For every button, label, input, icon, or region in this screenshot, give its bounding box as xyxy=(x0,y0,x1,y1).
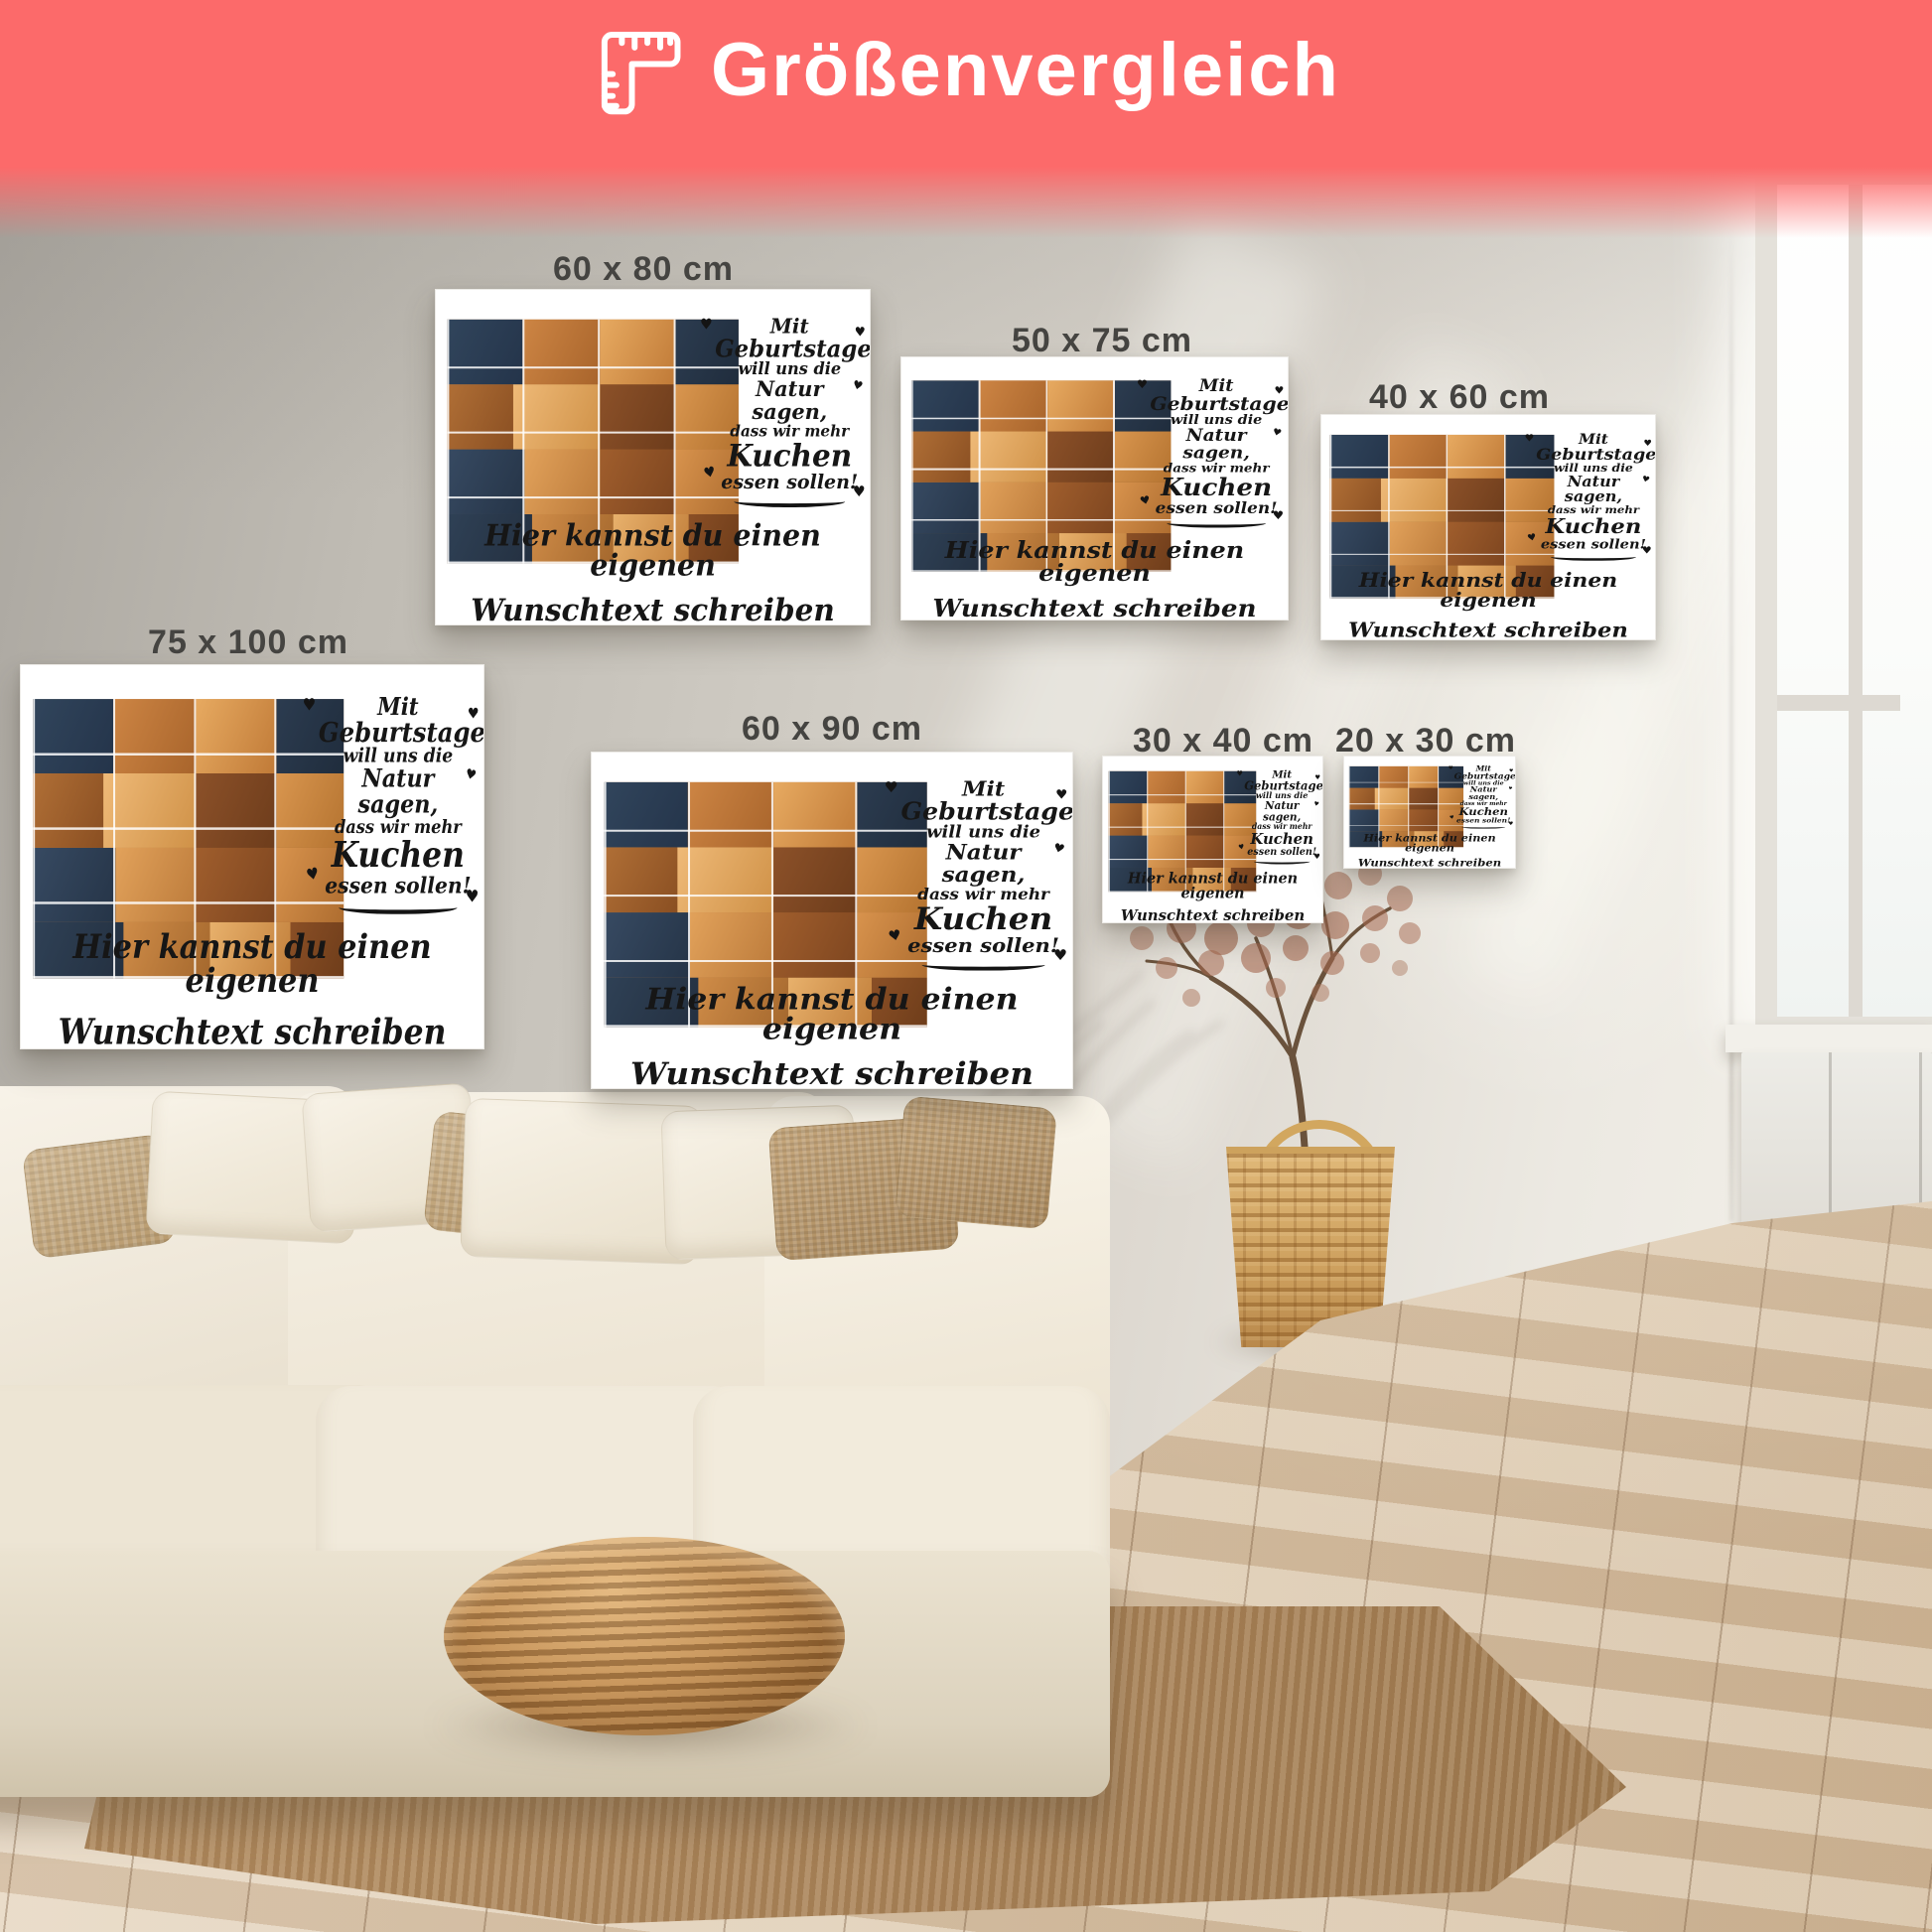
phrase-line: Natur sagen, xyxy=(1150,427,1283,463)
heart-icon: ♥ xyxy=(1314,774,1320,781)
canvas-print: 90 Mit Geburtstagen will uns die Natur s… xyxy=(20,664,484,1049)
throw-pillow xyxy=(895,1096,1057,1230)
page-title: Größenvergleich xyxy=(711,27,1340,113)
window-mullion xyxy=(1777,695,1900,711)
custom-text-line: Wunschtext schreiben xyxy=(1103,908,1322,923)
phrase-line: Geburtstagen xyxy=(900,800,1065,825)
phrase-line: essen sollen! xyxy=(900,935,1065,956)
phrase-line: essen sollen! xyxy=(1454,817,1513,824)
phrase-line: Kuchen xyxy=(715,440,864,472)
heart-icon: ♥ xyxy=(1449,765,1453,771)
heart-icon: ♥ xyxy=(1055,788,1067,803)
canvas-design: 90 Mit Geburtstagen will uns die Natur s… xyxy=(436,290,870,624)
phrase-line: essen sollen! xyxy=(1536,537,1650,551)
phrase-line: Geburtstagen xyxy=(715,337,864,361)
heart-icon: ♥ xyxy=(468,706,480,723)
custom-text-line: Hier kannst du einen eigenen xyxy=(1103,872,1322,900)
phrase-line: Geburtstagen xyxy=(1536,447,1650,464)
phrase-line: Natur sagen, xyxy=(900,842,1065,887)
heart-icon: ♥ xyxy=(853,483,866,500)
heart-icon: ♥ xyxy=(1508,821,1513,827)
phrase-line: essen sollen! xyxy=(319,874,478,897)
heart-icon: ♥ xyxy=(1525,432,1535,444)
heart-icon: ♥ xyxy=(700,316,713,334)
custom-text-line: Wunschtext schreiben xyxy=(1321,621,1655,640)
heart-icon: ♥ xyxy=(1643,439,1652,449)
window-sill xyxy=(1725,1025,1932,1052)
heart-icon: ♥ xyxy=(1642,544,1652,556)
header-banner: Größenvergleich xyxy=(0,0,1932,238)
phrase-line: Kuchen xyxy=(900,903,1065,935)
phrase-block: Mit Geburtstagen will uns die Natur sage… xyxy=(715,316,864,507)
custom-text-block: Hier kannst du einen eigenen Wunschtext … xyxy=(1344,834,1515,869)
swash-underline xyxy=(1461,825,1505,829)
phrase-line: Kuchen xyxy=(319,838,478,875)
size-label: 60 x 80 cm xyxy=(553,250,734,289)
heart-icon: ♥ xyxy=(1137,377,1148,391)
phrase-line: Kuchen xyxy=(1150,476,1283,500)
canvas-print: 90 Mit Geburtstagen will uns die Natur s… xyxy=(1343,756,1516,869)
wall-corner xyxy=(1729,228,1733,1221)
heart-icon: ♥ xyxy=(1238,843,1246,852)
swash-underline xyxy=(734,495,845,507)
heart-icon: ♥ xyxy=(1273,508,1284,522)
phrase-line: Natur sagen, xyxy=(1454,786,1513,801)
ruler-icon xyxy=(592,24,683,115)
phrase-block: Mit Geburtstagen will uns die Natur sage… xyxy=(1536,432,1650,561)
heart-icon: ♥ xyxy=(1237,769,1243,778)
size-label: 75 x 100 cm xyxy=(148,623,348,662)
swash-underline xyxy=(1551,553,1636,561)
swash-underline xyxy=(1167,518,1266,527)
heart-icon: ♥ xyxy=(1053,946,1067,964)
canvas-design: 90 Mit Geburtstagen will uns die Natur s… xyxy=(592,753,1072,1088)
custom-text-line: Wunschtext schreiben xyxy=(21,1016,483,1049)
canvas-print: 90 Mit Geburtstagen will uns die Natur s… xyxy=(435,289,871,625)
phrase-block: Mit Geburtstagen will uns die Natur sage… xyxy=(1150,377,1283,527)
window-mullion xyxy=(1849,185,1863,1017)
custom-text-block: Hier kannst du einen eigenen Wunschtext … xyxy=(1321,571,1655,640)
phrase-line: essen sollen! xyxy=(1244,847,1319,857)
heart-icon: ♥ xyxy=(855,326,866,341)
size-label: 60 x 90 cm xyxy=(742,710,922,749)
custom-text-block: Hier kannst du einen eigenen Wunschtext … xyxy=(592,986,1072,1089)
phrase-line: Natur sagen, xyxy=(715,379,864,424)
phrase-block: Mit Geburtstagen will uns die Natur sage… xyxy=(1454,765,1513,829)
product-size-comparison-image: Größenvergleich 60 x 80 cm 90 Mit Geburt… xyxy=(0,0,1932,1932)
heart-icon: ♥ xyxy=(1509,768,1513,773)
custom-text-line: Hier kannst du einen eigenen xyxy=(592,986,1072,1045)
heart-icon: ♥ xyxy=(1449,814,1455,820)
custom-text-block: Hier kannst du einen eigenen Wunschtext … xyxy=(901,539,1288,621)
phrase-line: Natur sagen, xyxy=(319,767,478,819)
wicker-pouf xyxy=(444,1537,845,1735)
canvas-design: 90 Mit Geburtstagen will uns die Natur s… xyxy=(21,665,483,1048)
heart-icon: ♥ xyxy=(885,778,898,796)
phrase-line: essen sollen! xyxy=(1150,500,1283,516)
phrase-line: Natur sagen, xyxy=(1536,475,1650,504)
heart-icon: ♥ xyxy=(1313,852,1319,861)
sideboard-cabinet xyxy=(1741,1052,1932,1229)
canvas-design: 90 Mit Geburtstagen will uns die Natur s… xyxy=(1103,757,1322,922)
custom-text-line: Wunschtext schreiben xyxy=(592,1059,1072,1089)
heart-icon: ♥ xyxy=(1274,385,1284,397)
custom-text-line: Wunschtext schreiben xyxy=(1344,858,1515,868)
phrase-line: Geburtstagen xyxy=(1150,394,1283,413)
phrase-line: Geburtstagen xyxy=(319,719,478,747)
window xyxy=(1755,164,1932,1037)
swash-underline xyxy=(921,959,1044,971)
size-label: 50 x 75 cm xyxy=(1012,322,1192,360)
custom-text-line: Hier kannst du einen eigenen xyxy=(901,539,1288,586)
heart-icon: ♥ xyxy=(466,887,480,906)
custom-text-block: Hier kannst du einen eigenen Wunschtext … xyxy=(436,522,870,625)
custom-text-line: Hier kannst du einen eigenen xyxy=(436,522,870,581)
custom-text-line: Hier kannst du einen eigenen xyxy=(1344,834,1515,854)
custom-text-line: Hier kannst du einen eigenen xyxy=(21,931,483,999)
custom-text-line: Hier kannst du einen eigenen xyxy=(1321,571,1655,611)
phrase-line: Natur sagen, xyxy=(1244,800,1319,822)
phrase-line: essen sollen! xyxy=(715,472,864,492)
swash-underline xyxy=(1254,859,1311,865)
phrase-line: Kuchen xyxy=(1244,831,1319,847)
custom-text-block: Hier kannst du einen eigenen Wunschtext … xyxy=(1103,872,1322,923)
heart-icon: ♥ xyxy=(303,695,317,715)
phrase-block: Mit Geburtstagen will uns die Natur sage… xyxy=(1244,769,1319,865)
swash-underline xyxy=(339,900,458,914)
custom-text-line: Wunschtext schreiben xyxy=(901,597,1288,621)
canvas-design: 90 Mit Geburtstagen will uns die Natur s… xyxy=(901,357,1288,620)
canvas-print: 90 Mit Geburtstagen will uns die Natur s… xyxy=(1102,756,1323,923)
canvas-print: 90 Mit Geburtstagen will uns die Natur s… xyxy=(1320,414,1656,640)
canvas-print: 90 Mit Geburtstagen will uns die Natur s… xyxy=(591,752,1073,1089)
custom-text-line: Wunschtext schreiben xyxy=(436,596,870,625)
canvas-design: 90 Mit Geburtstagen will uns die Natur s… xyxy=(1344,757,1515,868)
phrase-block: Mit Geburtstagen will uns die Natur sage… xyxy=(319,695,478,914)
canvas-print: 90 Mit Geburtstagen will uns die Natur s… xyxy=(900,356,1289,621)
phrase-line: Kuchen xyxy=(1536,516,1650,537)
canvas-design: 90 Mit Geburtstagen will uns die Natur s… xyxy=(1321,415,1655,639)
header-title-row: Größenvergleich xyxy=(0,24,1932,115)
custom-text-block: Hier kannst du einen eigenen Wunschtext … xyxy=(21,931,483,1049)
size-label: 40 x 60 cm xyxy=(1369,378,1550,417)
phrase-block: Mit Geburtstagen will uns die Natur sage… xyxy=(900,778,1065,971)
